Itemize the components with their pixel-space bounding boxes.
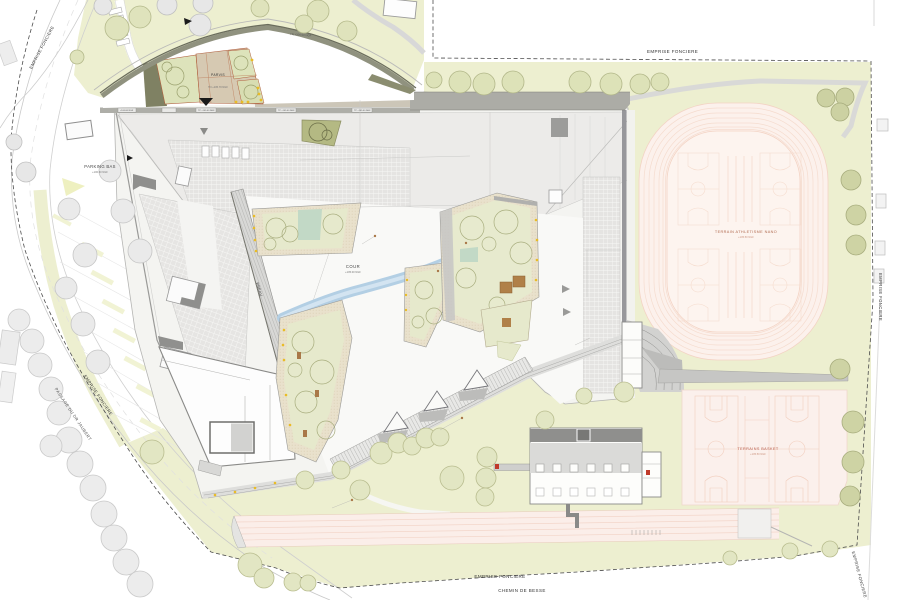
- svg-text:PARVIS: PARVIS: [211, 73, 225, 77]
- svg-text:TP +105.00 NGF: TP +105.00 NGF: [278, 110, 295, 112]
- svg-text:+100.60 NGF: +100.60 NGF: [92, 170, 108, 174]
- svg-text:COUR: COUR: [346, 264, 360, 269]
- svg-text:+105.50 NGF: +105.50 NGF: [738, 235, 754, 239]
- svg-text:PARKING BAS: PARKING BAS: [84, 164, 115, 169]
- svg-text:TERRAINS BASKET: TERRAINS BASKET: [737, 447, 779, 451]
- svg-text:EMPRISE FONCIERE: EMPRISE FONCIERE: [878, 273, 883, 321]
- svg-text:+105.50 NGF: +105.50 NGF: [750, 452, 766, 456]
- svg-text:+105.00 NGF: +105.00 NGF: [345, 270, 361, 274]
- svg-text:+100.60 NGF: +100.60 NGF: [120, 110, 134, 112]
- svg-text:TN +105.70 NGF: TN +105.70 NGF: [208, 85, 228, 89]
- svg-text:TP +105.00 NGF: TP +105.00 NGF: [198, 110, 215, 112]
- svg-text:EMPRISE FONCIERE: EMPRISE FONCIERE: [647, 49, 698, 54]
- svg-text:TP +105.00 NGF: TP +105.00 NGF: [354, 110, 371, 112]
- svg-text:CHEMIN DE BESSE: CHEMIN DE BESSE: [498, 588, 546, 593]
- svg-text:TERRAIN ATHLETISME NANO: TERRAIN ATHLETISME NANO: [715, 230, 777, 234]
- svg-text:EMPRISE FONCIERE: EMPRISE FONCIERE: [474, 574, 525, 579]
